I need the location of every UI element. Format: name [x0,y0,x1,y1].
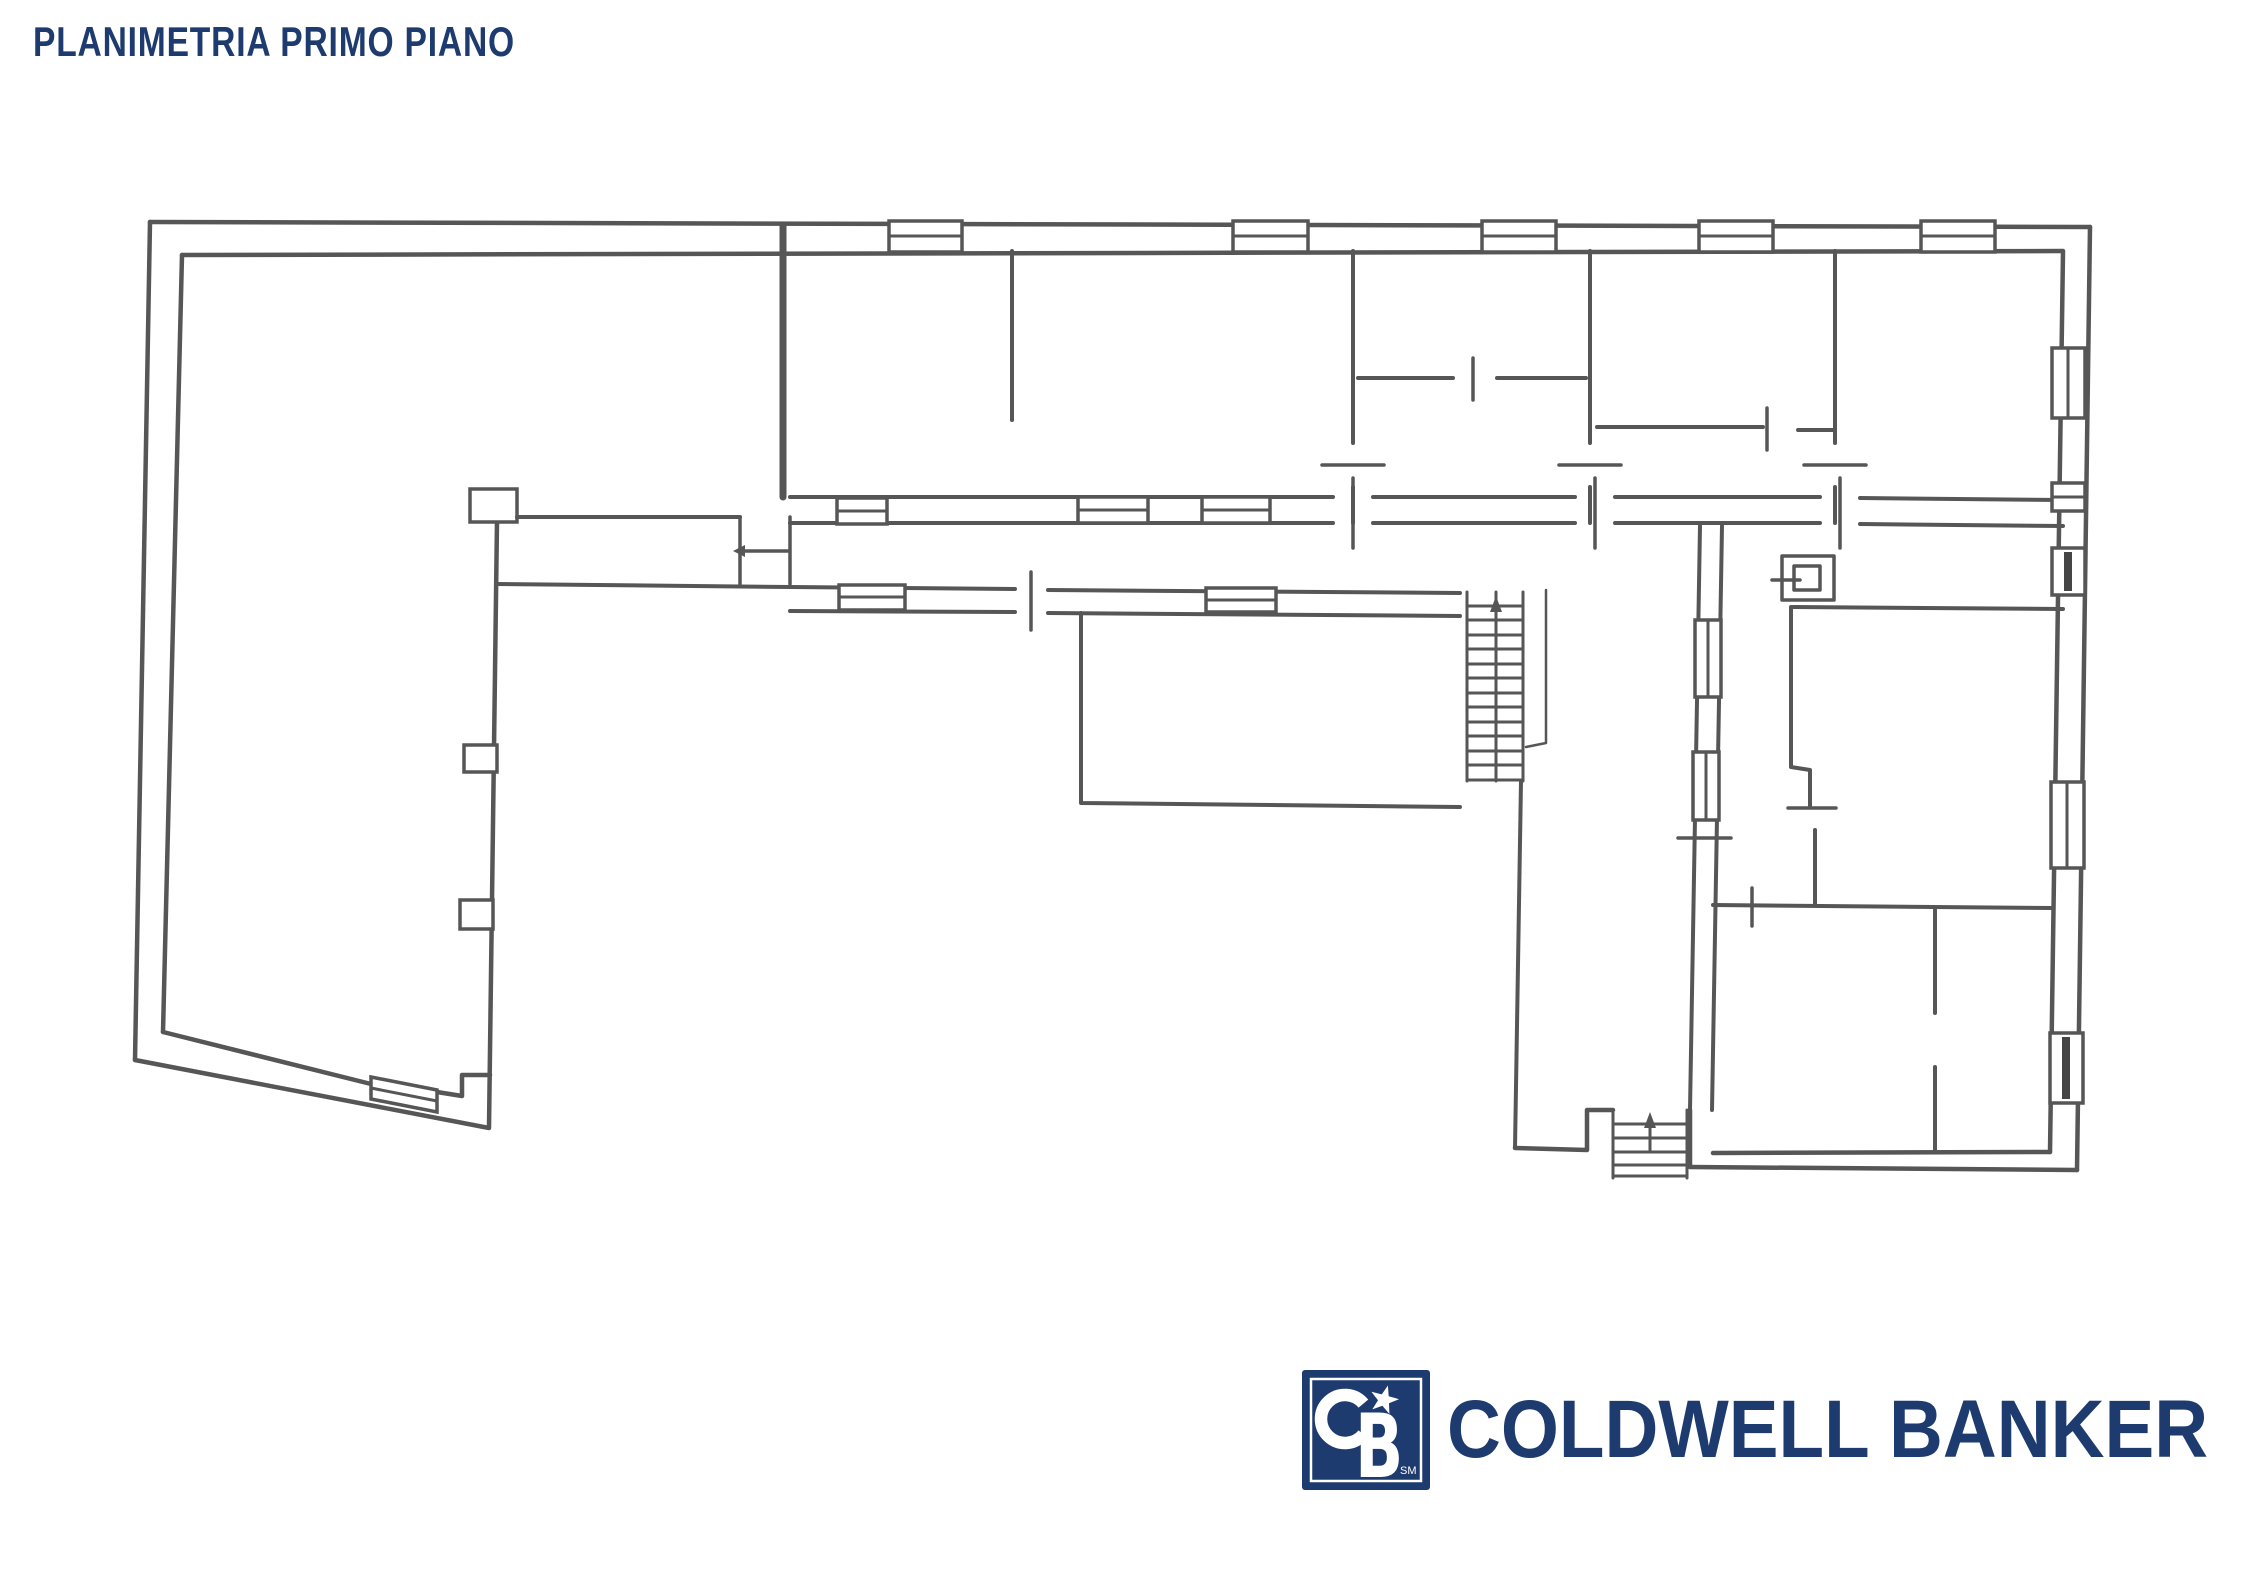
secondary-staircase [1613,1110,1687,1178]
window-symbol [1695,620,1721,697]
pillar [460,900,493,929]
window-symbol [1921,221,1995,252]
porch-walls [1081,613,1460,807]
window-symbol [2050,1033,2083,1103]
window-symbol [1233,221,1308,252]
brand-logo: B SM COLDWELL BANKER [1302,1370,2208,1499]
outer-walls [135,222,2090,1170]
duct-core [1794,566,1820,590]
stair-direction-arrow [1490,596,1502,612]
interior-walls [497,225,2063,1152]
cb-monogram-b: B [1355,1397,1403,1499]
window-symbol [839,585,905,610]
window-symbol [837,498,887,524]
floor-plan-drawing [135,221,2090,1178]
window-symbol [1693,752,1719,820]
window-symbol [1202,497,1270,523]
page-background: { "page": { "width": 2245, "height": 158… [0,0,2245,1587]
window-symbol [2052,348,2085,418]
floor-plan: B SM COLDWELL BANKER [0,0,2245,1587]
window-symbol [1078,497,1148,523]
window-symbol [2052,483,2085,511]
window-symbol [2052,548,2085,595]
window-symbol [1482,221,1556,252]
window-symbol [1206,588,1276,612]
door-mark [733,517,790,584]
window-symbol [1699,221,1773,252]
window-symbols [371,221,2085,1112]
main-staircase [1467,590,1546,781]
wall-pillars [460,489,517,929]
cb-seal: B SM [1302,1370,1430,1499]
pillar [470,489,517,522]
stair-direction-arrow [1644,1112,1656,1128]
pillar [464,745,497,772]
window-symbol [2051,782,2084,868]
window-symbol [889,221,962,252]
sm-trademark: SM [1400,1465,1417,1477]
brand-wordmark: COLDWELL BANKER [1447,1383,2208,1475]
